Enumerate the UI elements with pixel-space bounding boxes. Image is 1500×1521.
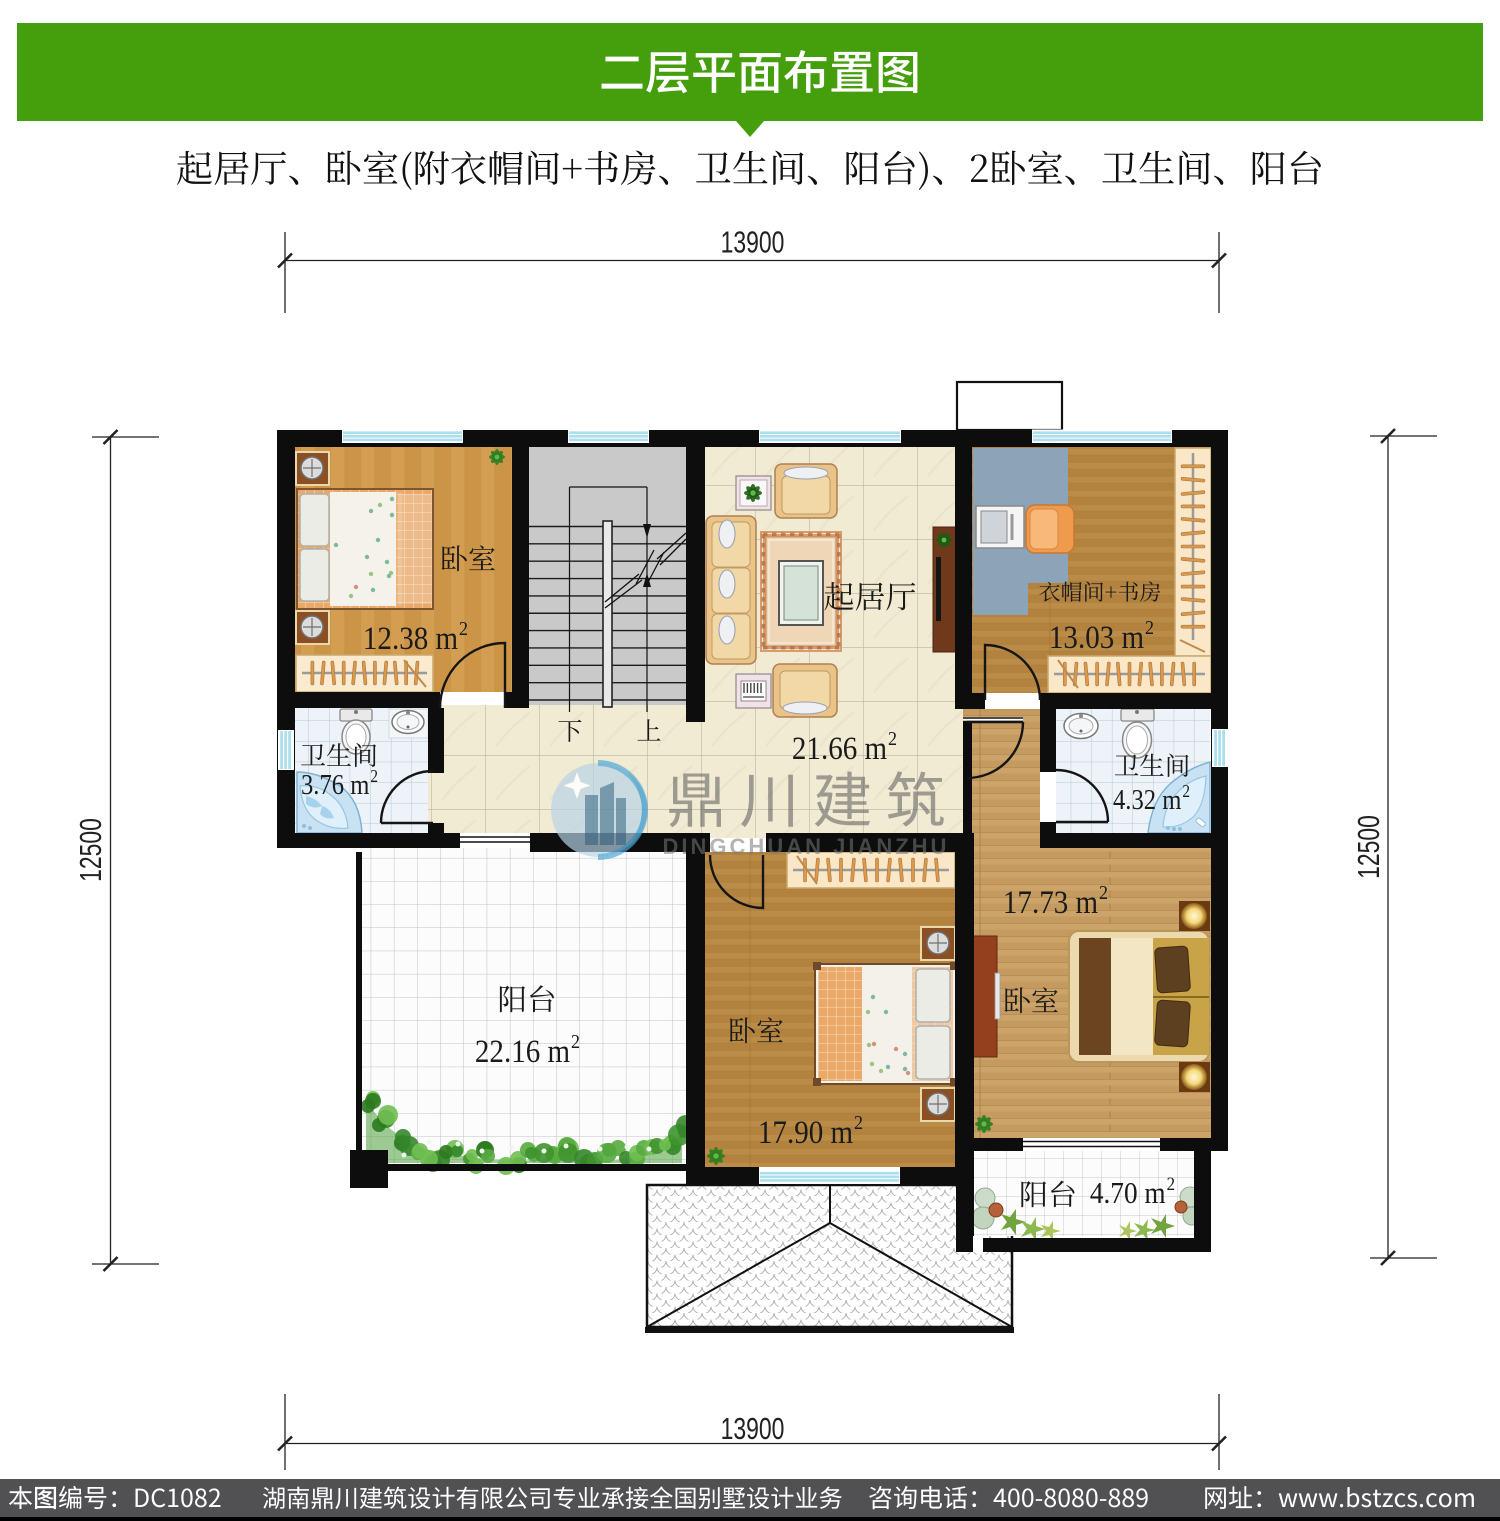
svg-text:DINGCHUAN JIANZHU: DINGCHUAN JIANZHU: [663, 834, 950, 859]
svg-text:17.73 m: 17.73 m: [1003, 883, 1098, 920]
svg-text:2: 2: [1145, 617, 1154, 639]
svg-text:13900: 13900: [721, 1411, 785, 1446]
svg-text:2: 2: [1167, 1173, 1175, 1194]
svg-text:4.32 m: 4.32 m: [1113, 785, 1182, 816]
svg-text:17.90 m: 17.90 m: [758, 1113, 853, 1150]
svg-text:2: 2: [1099, 882, 1108, 904]
svg-text:4.70 m: 4.70 m: [1090, 1176, 1166, 1210]
svg-text:2: 2: [854, 1112, 863, 1134]
svg-text:12500: 12500: [1351, 815, 1386, 879]
svg-text:12500: 12500: [73, 818, 108, 882]
svg-text:2: 2: [888, 728, 897, 750]
svg-text:21.66 m: 21.66 m: [792, 729, 887, 766]
svg-text:13.03 m: 13.03 m: [1049, 618, 1144, 655]
svg-text:2: 2: [459, 618, 468, 640]
svg-text:22.16 m: 22.16 m: [475, 1032, 570, 1069]
svg-text:2: 2: [571, 1031, 580, 1053]
svg-text:2: 2: [1182, 781, 1190, 801]
svg-text:2: 2: [370, 766, 378, 786]
svg-text:13900: 13900: [721, 224, 785, 259]
svg-text:3.76 m: 3.76 m: [301, 770, 370, 801]
svg-text:12.38 m: 12.38 m: [363, 619, 458, 656]
